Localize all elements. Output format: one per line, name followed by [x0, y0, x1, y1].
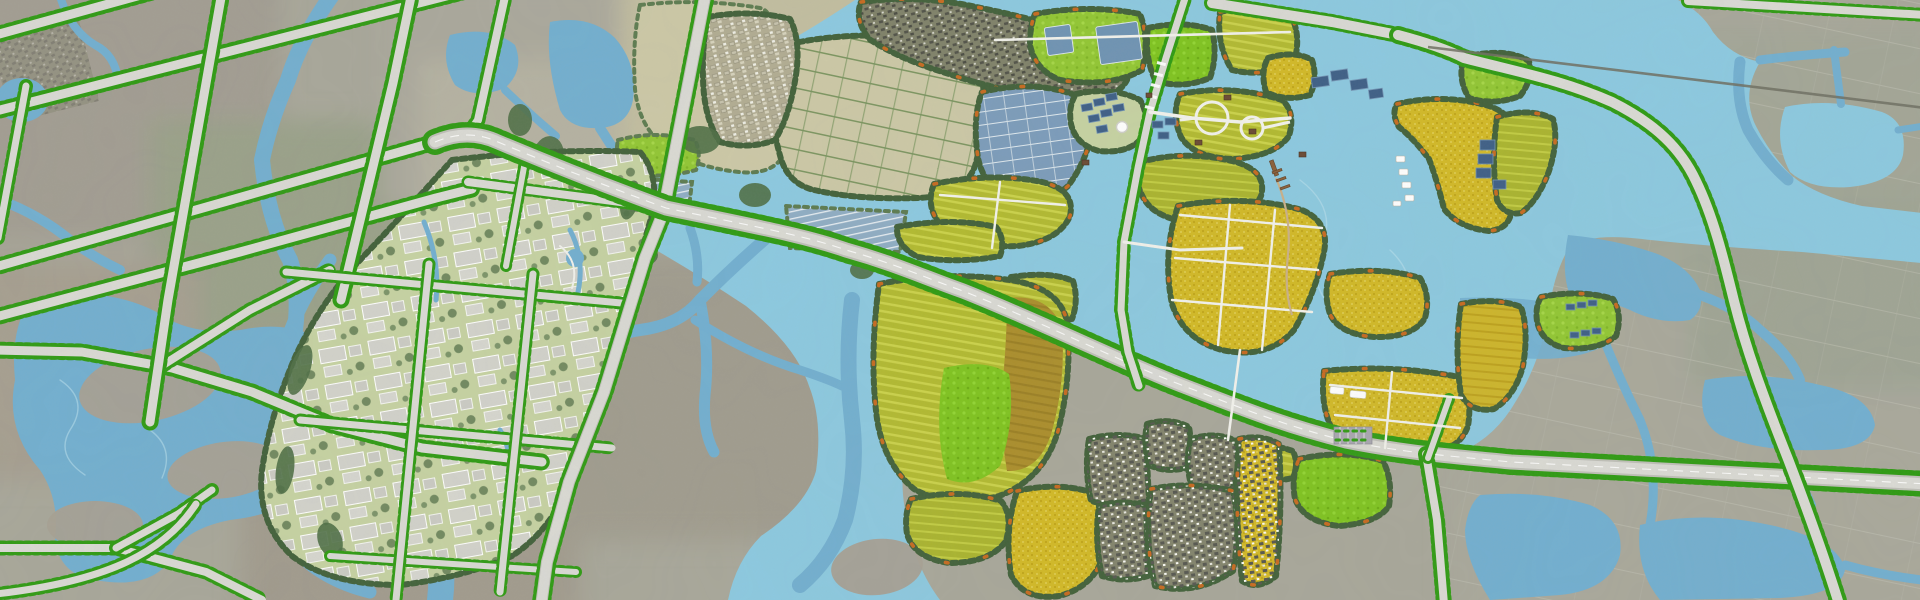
grain-overlay — [0, 0, 1920, 600]
masterplan-map — [0, 0, 1920, 600]
map-canvas[interactable] — [0, 0, 1920, 600]
